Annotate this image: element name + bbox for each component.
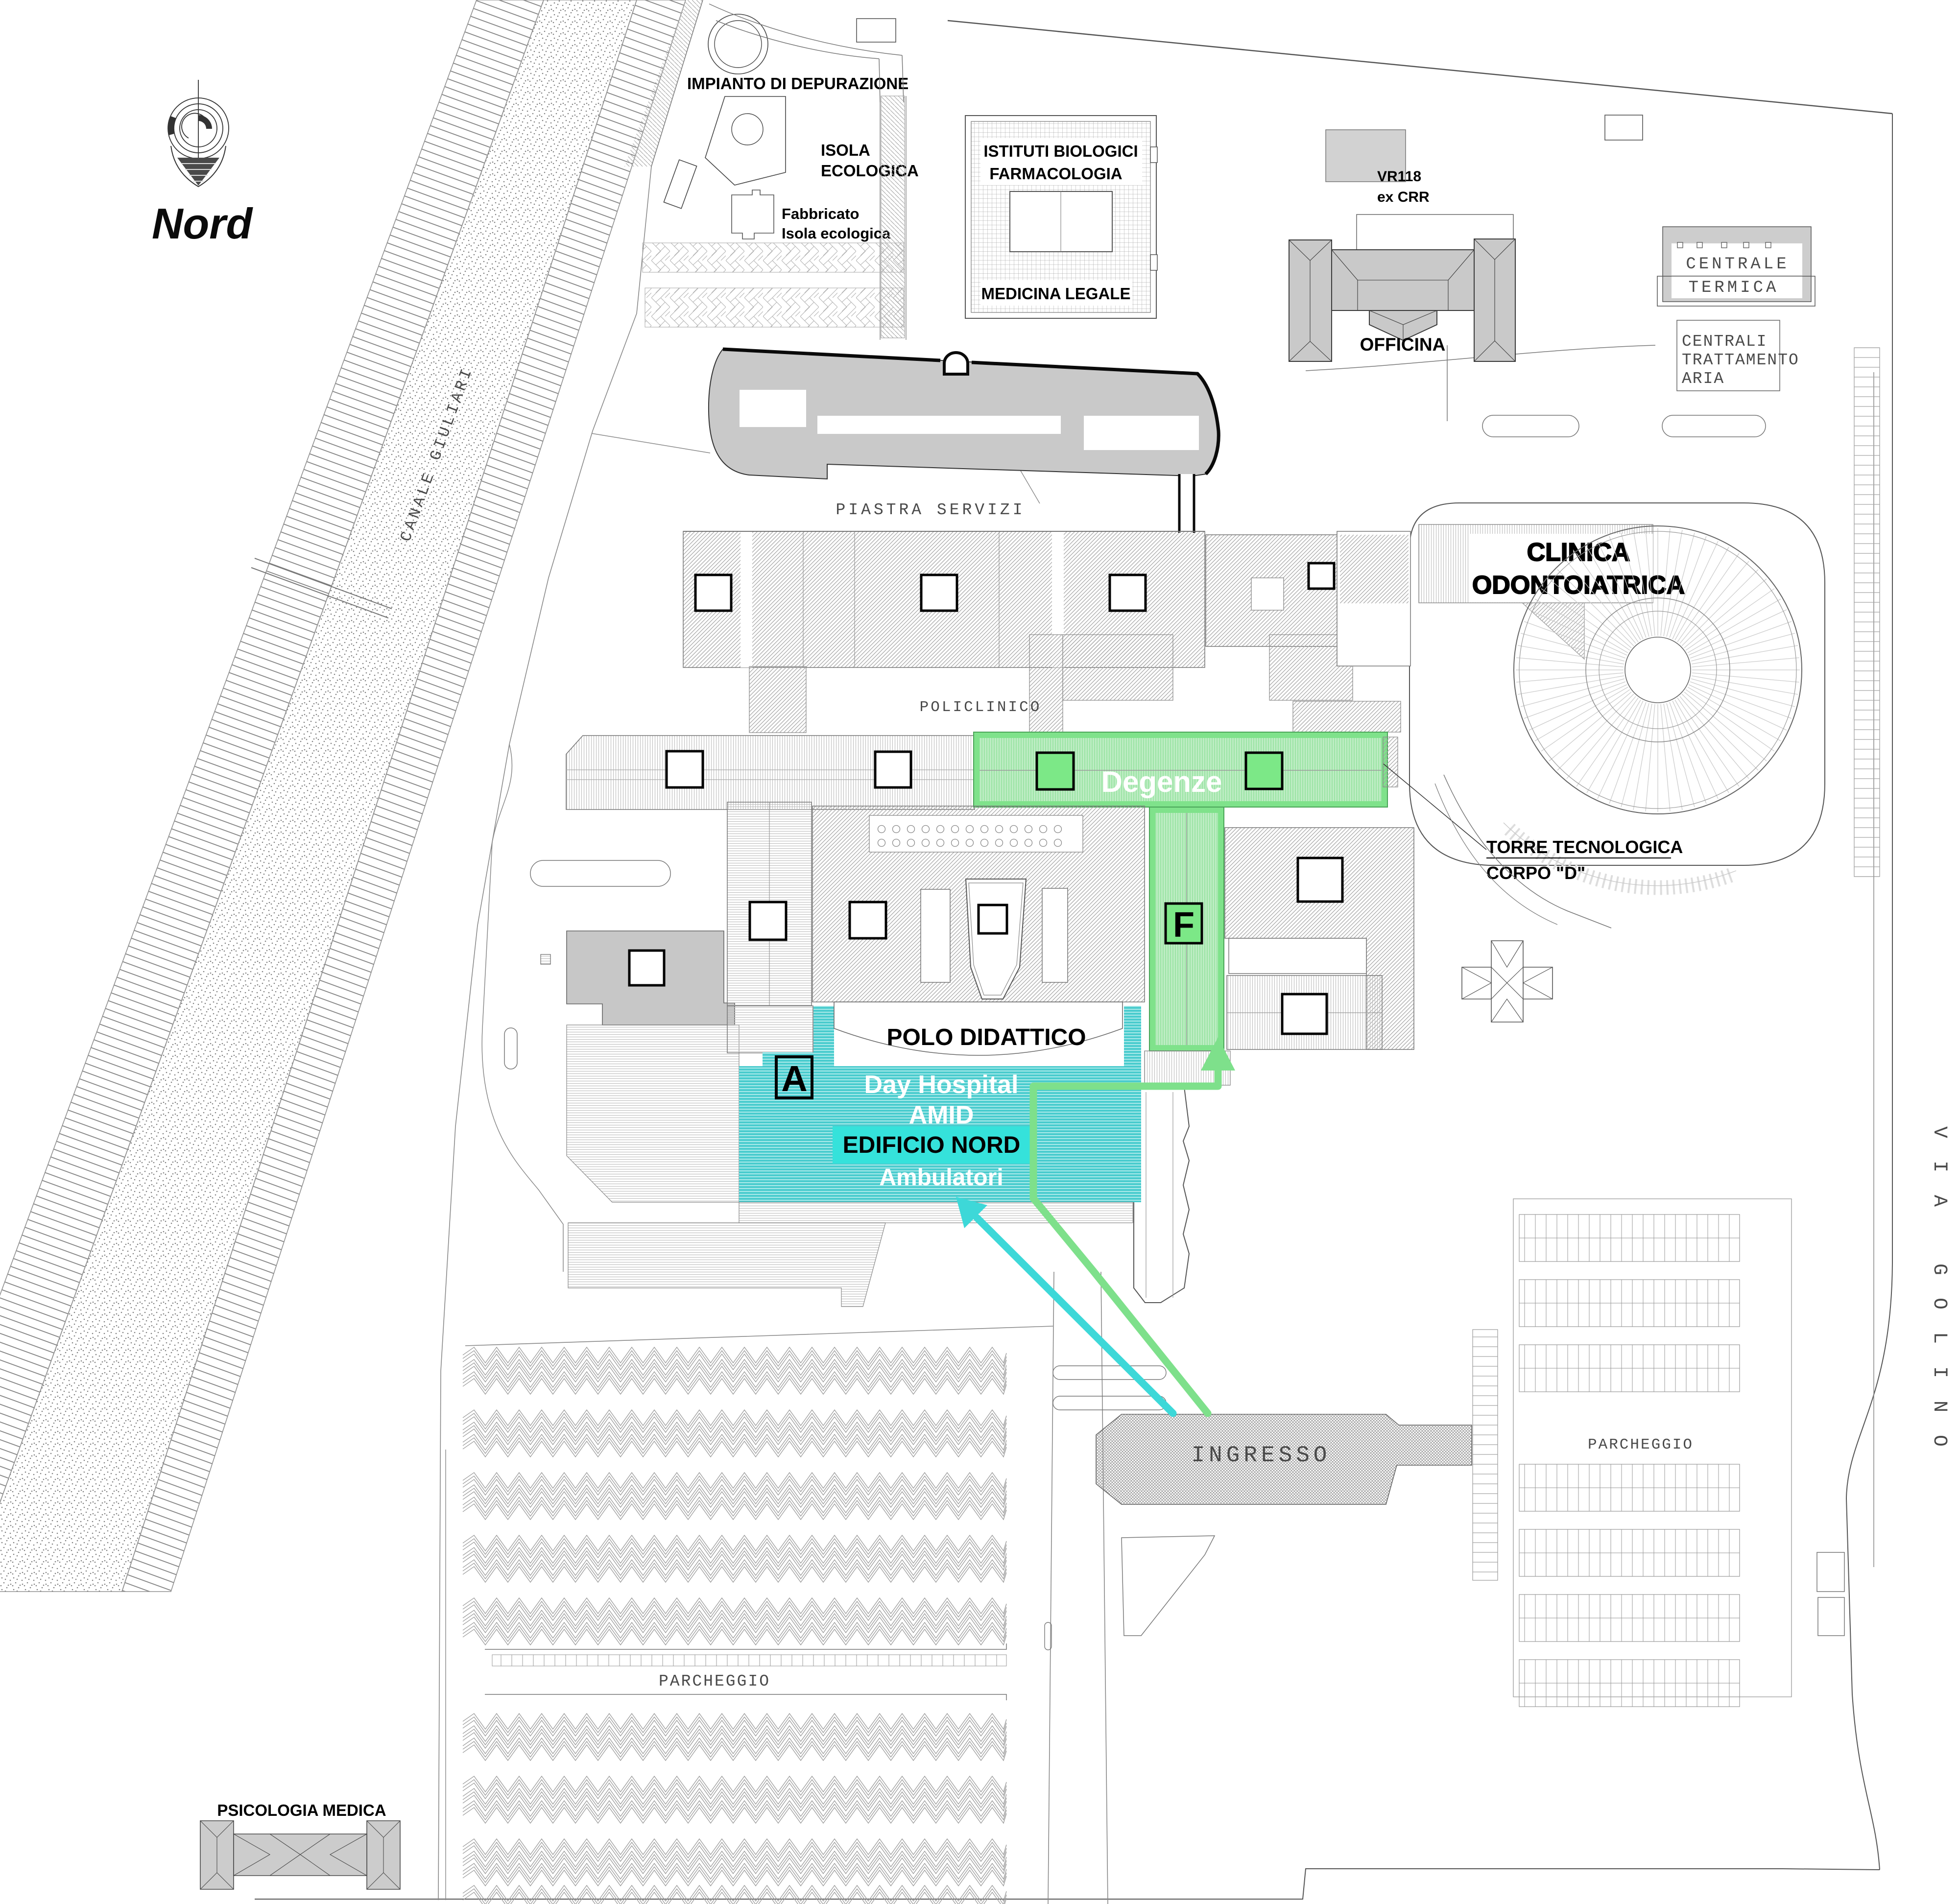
svg-text:Ambulatori: Ambulatori (879, 1165, 1003, 1190)
svg-text:F: F (1173, 905, 1195, 945)
svg-text:CENTRALE: CENTRALE (1686, 255, 1789, 274)
svg-text:A: A (781, 1058, 807, 1099)
svg-text:PIASTRA SERVIZI: PIASTRA SERVIZI (836, 501, 1025, 519)
svg-text:PARCHEGGIO: PARCHEGGIO (659, 1672, 770, 1690)
svg-text:TORRE TECNOLOGICA: TORRE TECNOLOGICA (1486, 837, 1683, 857)
svg-text:INGRESSO: INGRESSO (1192, 1443, 1331, 1468)
svg-text:IMPIANTO DI DEPURAZIONE: IMPIANTO DI DEPURAZIONE (687, 74, 908, 93)
svg-text:AMID: AMID (909, 1101, 974, 1129)
svg-text:POLO DIDATTICO: POLO DIDATTICO (886, 1024, 1086, 1050)
svg-text:Degenze: Degenze (1101, 765, 1222, 798)
svg-text:CENTRALI: CENTRALI (1682, 333, 1767, 351)
svg-text:MEDICINA LEGALE: MEDICINA LEGALE (981, 285, 1131, 303)
svg-text:VR118: VR118 (1377, 168, 1421, 185)
svg-text:ARIA: ARIA (1682, 370, 1724, 388)
svg-text:POLICLINICO: POLICLINICO (920, 699, 1042, 716)
svg-text:ex CRR: ex CRR (1377, 189, 1430, 205)
svg-text:CORPO "D": CORPO "D" (1486, 863, 1585, 883)
svg-text:Nord: Nord (152, 199, 254, 248)
svg-text:FARMACOLOGIA: FARMACOLOGIA (989, 165, 1122, 183)
svg-text:PARCHEGGIO: PARCHEGGIO (1588, 1436, 1694, 1453)
svg-text:OFFICINA: OFFICINA (1360, 334, 1446, 355)
svg-text:TERMICA: TERMICA (1689, 279, 1779, 297)
svg-text:VIA GOLINO: VIA GOLINO (1928, 1126, 1950, 1469)
svg-text:Fabbricato: Fabbricato (782, 205, 859, 222)
svg-text:TRATTAMENTO: TRATTAMENTO (1682, 351, 1799, 369)
svg-text:CLINICA: CLINICA (1527, 538, 1630, 567)
svg-text:Isola ecologica: Isola ecologica (782, 225, 891, 242)
svg-text:ISOLA: ISOLA (821, 141, 870, 159)
svg-text:EDIFICIO NORD: EDIFICIO NORD (843, 1132, 1021, 1158)
svg-text:PSICOLOGIA MEDICA: PSICOLOGIA MEDICA (217, 1801, 386, 1819)
svg-text:Day Hospital: Day Hospital (864, 1071, 1019, 1099)
svg-text:ISTITUTI BIOLOGICI: ISTITUTI BIOLOGICI (983, 142, 1138, 160)
